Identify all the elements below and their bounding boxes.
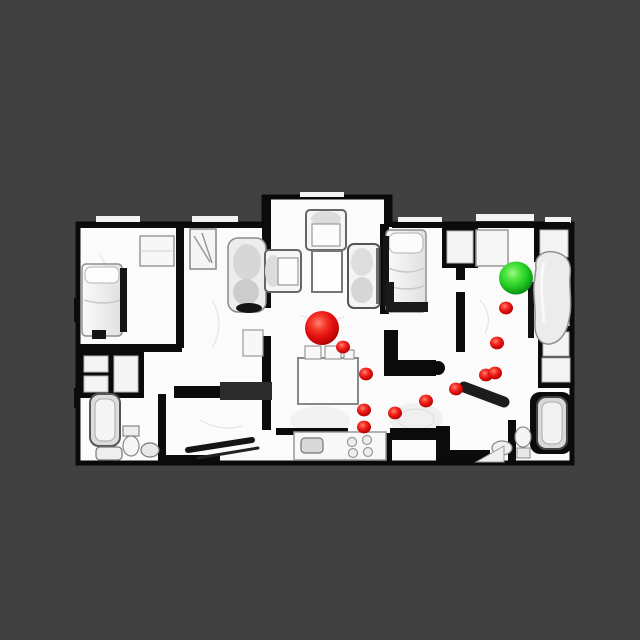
- wall-edge-notch: [74, 388, 80, 408]
- bed-foot-stub: [386, 282, 394, 304]
- bathtub-basin: [542, 402, 562, 444]
- waypoint-sphere-4: [357, 421, 371, 434]
- toilet-bowl: [515, 427, 531, 447]
- bed-shadow: [120, 268, 127, 332]
- armchair-left-seat: [278, 258, 298, 285]
- wall-bathroom-right-left: [508, 420, 516, 463]
- wall-bedroom1-right: [176, 224, 184, 348]
- tv-stand-dark-box: [220, 382, 272, 400]
- stove-burner: [348, 438, 357, 447]
- bathtub-basin: [95, 399, 115, 441]
- dining-chair: [305, 346, 321, 359]
- wall-kitchen-L-horizontal: [384, 360, 436, 376]
- waypoint-sphere-11: [499, 302, 513, 315]
- side-desk: [243, 330, 263, 356]
- kitchen-fixtures: [294, 432, 386, 460]
- waypoint-sphere-3: [357, 404, 371, 417]
- 3d-scene-viewport[interactable]: [0, 0, 640, 640]
- waypoint-sphere-10: [490, 337, 504, 350]
- waypoint-sphere-2: [359, 368, 373, 381]
- agent-position-sphere: [305, 311, 339, 345]
- wall-bathroom-left-right: [158, 394, 166, 463]
- waypoint-sphere-7: [449, 383, 463, 396]
- wall-bed4-left-b: [456, 292, 465, 352]
- waypoint-sphere-6: [419, 395, 433, 408]
- toilet-bowl: [123, 436, 139, 456]
- wall-knob: [431, 361, 445, 375]
- loveseat-cushion: [351, 277, 373, 303]
- kitchen-sink: [301, 438, 323, 453]
- sink: [141, 443, 159, 457]
- armchair-shadow: [236, 303, 262, 313]
- wall-top-highlight: [476, 214, 534, 221]
- bed-pillow: [85, 267, 119, 283]
- closet-left-inset: [84, 376, 108, 392]
- bed-foot: [92, 330, 106, 339]
- stove-burner: [363, 436, 372, 445]
- armchair-top-seat: [312, 224, 340, 246]
- waypoint-sphere-9: [488, 367, 502, 380]
- bed-organic-blob: [534, 252, 571, 344]
- waypoint-sphere-5: [388, 407, 402, 420]
- dresser: [476, 230, 508, 266]
- mid-right-bedroom-furniture: [383, 230, 428, 312]
- scene-svg: [0, 0, 640, 640]
- dining-table: [298, 358, 358, 404]
- stove-burner: [349, 449, 358, 458]
- loveseat-shadow: [376, 248, 381, 304]
- loveseat-cushion: [351, 248, 373, 276]
- wall-top-highlight: [300, 192, 344, 197]
- wall-top-highlight: [192, 216, 238, 222]
- bed-blob-shadow: [528, 282, 534, 338]
- closet-right-inset: [542, 358, 570, 382]
- closet-mid-inset: [447, 231, 473, 263]
- wall-top-band-left: [80, 222, 264, 228]
- closet-left-inset: [84, 356, 108, 372]
- wall-living-bump-right: [384, 197, 392, 227]
- toilet-base: [517, 448, 530, 458]
- waypoint-sphere-1: [336, 341, 350, 354]
- closet-left-inset: [114, 356, 138, 392]
- toilet-tank: [123, 426, 139, 436]
- bed-pillow: [389, 233, 423, 253]
- armchair-cushion: [233, 244, 261, 280]
- washer-box: [96, 447, 122, 460]
- coffee-table: [312, 251, 342, 292]
- stove-burner: [364, 448, 373, 457]
- armchair-cushion: [233, 279, 259, 305]
- wall-edge-notch: [74, 298, 80, 322]
- wall-top-highlight: [96, 216, 140, 222]
- wall-hall-left: [174, 386, 220, 398]
- goal-sphere: [499, 262, 533, 295]
